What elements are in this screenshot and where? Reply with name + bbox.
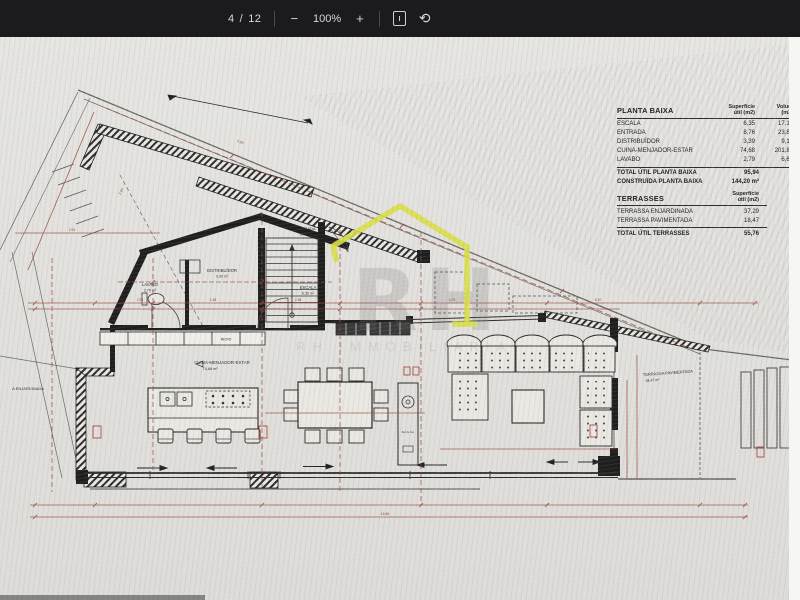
terrace-planters [741,367,790,448]
page-current[interactable]: 4 [228,13,235,25]
sliding-door-arrows [137,460,600,471]
label-entrada-area: 8,76 m² [300,233,313,237]
label-terrassa-pav-area: 18,47 m² [645,378,660,383]
watermark-subtext: RH IMMOBILIÀRIA [296,339,512,354]
table-row: TERRASSA ENJARDINADA37,29 [617,208,800,217]
construida-row: CONSTRUÏDA PLANTA BAIXA144,20 m² [617,178,800,187]
total-util-row: TOTAL ÚTIL PLANTA BAIXA95,94 [617,169,800,178]
page-indicator[interactable]: 4 / 12 [228,13,261,25]
label-distribuidor-area: 3,39 m² [216,275,229,279]
label-cuina-area: 74,68 m² [203,367,219,371]
bottom-wall-windows [84,471,736,489]
dining-table-set [284,368,388,443]
area-table: PLANTA BAIXA Superfícieútil (m2) Volum(m… [617,104,800,239]
fit-page-icon [399,16,401,21]
dimension-labels: 3.00 5.00 2.35 1.38 2.38 4.75 6.10 2.93 … [69,139,602,516]
rotate-button[interactable]: ⟲ [419,11,431,25]
dim-label: 2.35 [137,298,144,302]
table-row: TERRASSA PAVIMENTADA18,47 [617,217,800,226]
coffee-table [512,390,544,423]
dim-label: 2.38 [295,298,302,302]
table-row: ENTRADA8,7623,885,9 [617,129,800,138]
dim-label: 16.65 [381,512,390,516]
table-row: CUINA-MENJADOR-ESTAR74,68201,8735,9 [617,147,800,156]
dim-label: 2.93 [69,228,76,232]
total-terrasses-row: TOTAL ÚTIL TERRASSES55,76 [617,230,800,239]
dim-label: 6.10 [595,298,602,302]
table-row: DISTRIBUÏDOR3,399,15 [617,138,800,147]
floor-plan-drawing: LAVABO 2,79 m² DISTRIBUÏDOR 3,39 m² ESCA… [0,0,800,600]
watermark-letters: RH [352,251,502,351]
zoom-level[interactable]: 100% [313,13,341,25]
label-cuina-name: CUINA-MENJADOR-ESTAR [194,360,250,365]
table-row: LAVABO2,796,69 [617,156,800,165]
label-lavabo-name: LAVABO [142,282,159,287]
label-micro: MICRO [221,338,232,342]
dim-label: 1.38 [210,298,217,302]
terrain-step-ticks [52,164,104,237]
photo-edge-dark [0,595,205,600]
toolbar-divider [379,11,380,27]
zoom-out-button[interactable]: − [288,11,300,26]
label-escala-name: ESCALA [300,285,317,290]
fit-page-button[interactable] [393,11,406,26]
table-title: PLANTA BAIXA [617,107,717,116]
photo-edge-strip [789,37,800,600]
kitchen-island [148,388,258,432]
label-terrassa-enj: A ENJARDINADA [12,386,44,391]
label-terrassa-pav-name: TERRASSA PAVIMENTADA [643,369,694,378]
page-count: 12 [248,13,261,25]
fireplace-column [398,383,418,465]
page-divider: / [240,13,244,25]
zoom-in-button[interactable]: + [354,11,366,26]
label-distribuidor-name: DISTRIBUÏDOR [207,268,237,273]
dim-label: 3.00 [118,188,125,196]
label-entrada-name: ENTRADA [296,226,315,231]
pdf-toolbar: 4 / 12 − 100% + ⟲ [0,0,800,37]
label-fireplace: llar de foc [402,430,415,434]
label-lavabo-area: 2,79 m² [144,289,157,293]
terrasses-header: TERRASSES Superfícieútil (m2) [617,191,800,203]
dim-label: 5.00 [237,139,245,145]
label-escala-area: 6,35 m² [302,292,315,296]
toolbar-divider [274,11,275,27]
table-row: ESCALA6,3517,155,0 [617,120,800,129]
top-black-dimension [168,95,312,124]
